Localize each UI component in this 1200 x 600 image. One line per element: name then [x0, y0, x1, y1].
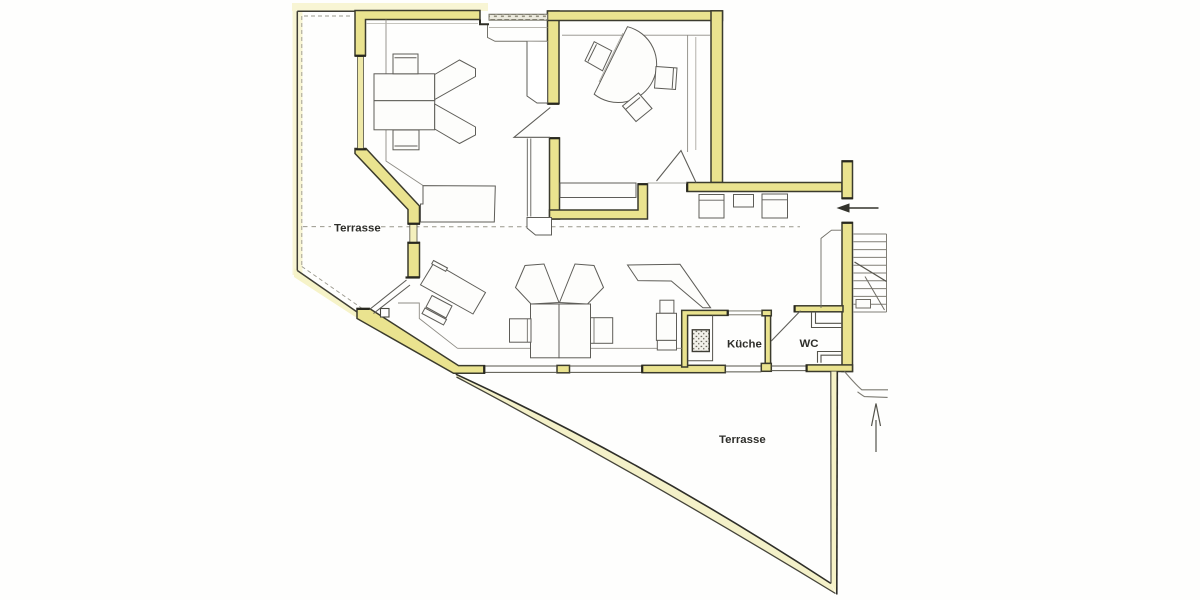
svg-text:Küche: Küche: [727, 339, 762, 351]
svg-text:WC: WC: [800, 338, 819, 350]
svg-text:Terrasse: Terrasse: [334, 223, 381, 235]
svg-text:Terrasse: Terrasse: [719, 434, 766, 446]
